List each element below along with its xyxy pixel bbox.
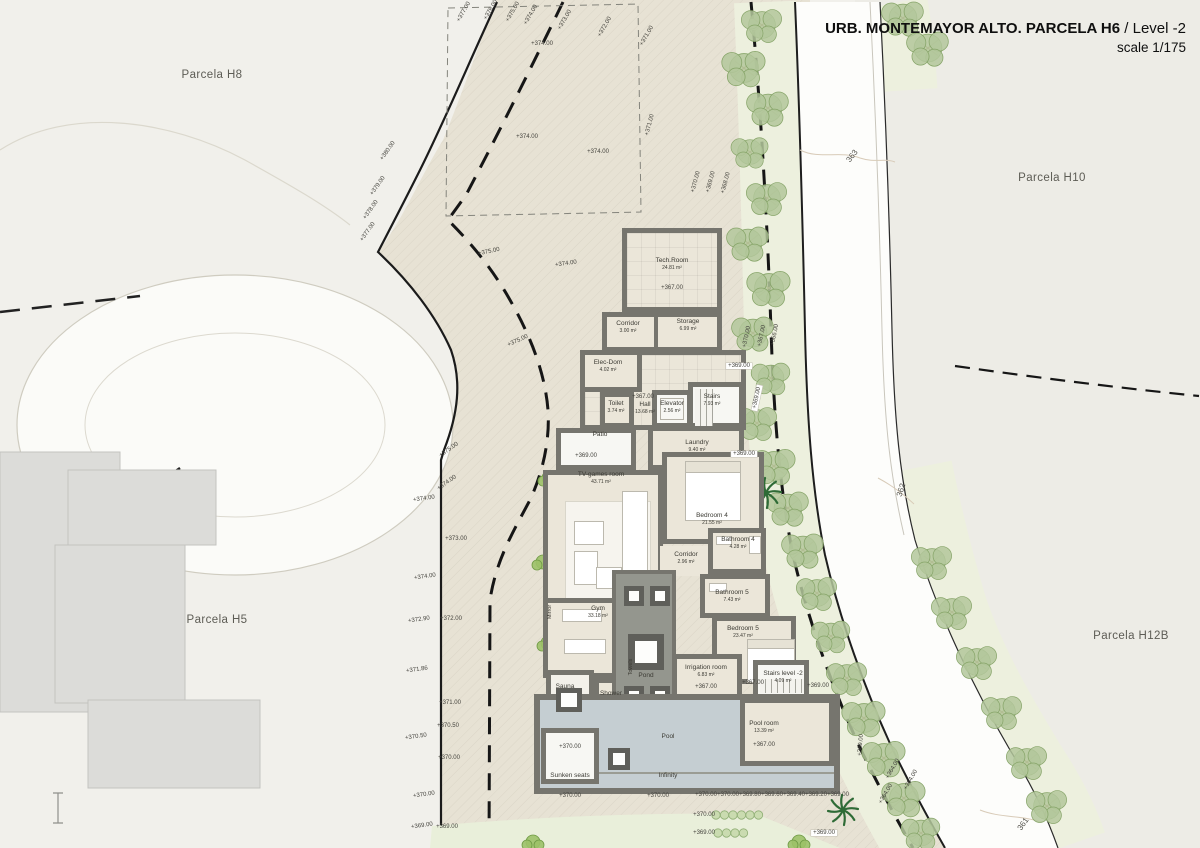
sofa-2 xyxy=(574,551,598,585)
room-elec-dom xyxy=(580,350,642,392)
drawing-title-level: Level -2 xyxy=(1133,20,1186,37)
gym-treadmill xyxy=(564,639,606,654)
room-bathroom4 xyxy=(708,528,766,574)
room-tech xyxy=(622,228,722,312)
site-plan-canvas: Tech.Room24.81 m²Corridor3.00 m²Storage6… xyxy=(0,0,1200,848)
sink-5 xyxy=(709,583,727,592)
pool-water-infinity xyxy=(746,764,834,788)
stair-treads xyxy=(695,389,713,427)
room-corridor-storage xyxy=(602,312,722,352)
media-shelf xyxy=(622,491,648,571)
room-sunken-seats xyxy=(541,728,599,784)
pool-planter xyxy=(608,748,630,770)
gym-bench xyxy=(562,609,602,622)
wall-divider xyxy=(654,314,658,350)
shower-4 xyxy=(749,536,761,554)
drawing-title-main: URB. MONTEMAYOR ALTO. PARCELA H6 xyxy=(825,20,1120,37)
sofa xyxy=(574,521,604,545)
sink-4 xyxy=(716,536,732,545)
drawing-title: URB. MONTEMAYOR ALTO. PARCELA H6 / Level… xyxy=(825,20,1186,37)
bed-5-pillows xyxy=(747,639,795,649)
pond-planter xyxy=(650,586,670,606)
room-elevator xyxy=(652,390,692,428)
building-plan xyxy=(0,0,1200,848)
room-patio xyxy=(556,428,636,470)
room-toilet xyxy=(600,392,634,428)
bed-4-pillows xyxy=(685,461,741,473)
drawing-title-sep: / xyxy=(1120,20,1133,37)
title-block: URB. MONTEMAYOR ALTO. PARCELA H6 / Level… xyxy=(825,20,1186,55)
stair-treads-2 xyxy=(760,679,804,693)
pool-step-planter xyxy=(556,688,582,712)
drawing-scale: scale 1/175 xyxy=(825,40,1186,55)
elevator-car xyxy=(660,398,684,420)
room-bathroom5 xyxy=(700,574,770,618)
room-stairs-upper xyxy=(688,382,744,428)
room-pool-room xyxy=(740,698,834,766)
pond-planter-large xyxy=(628,634,664,670)
pond-planter xyxy=(624,586,644,606)
